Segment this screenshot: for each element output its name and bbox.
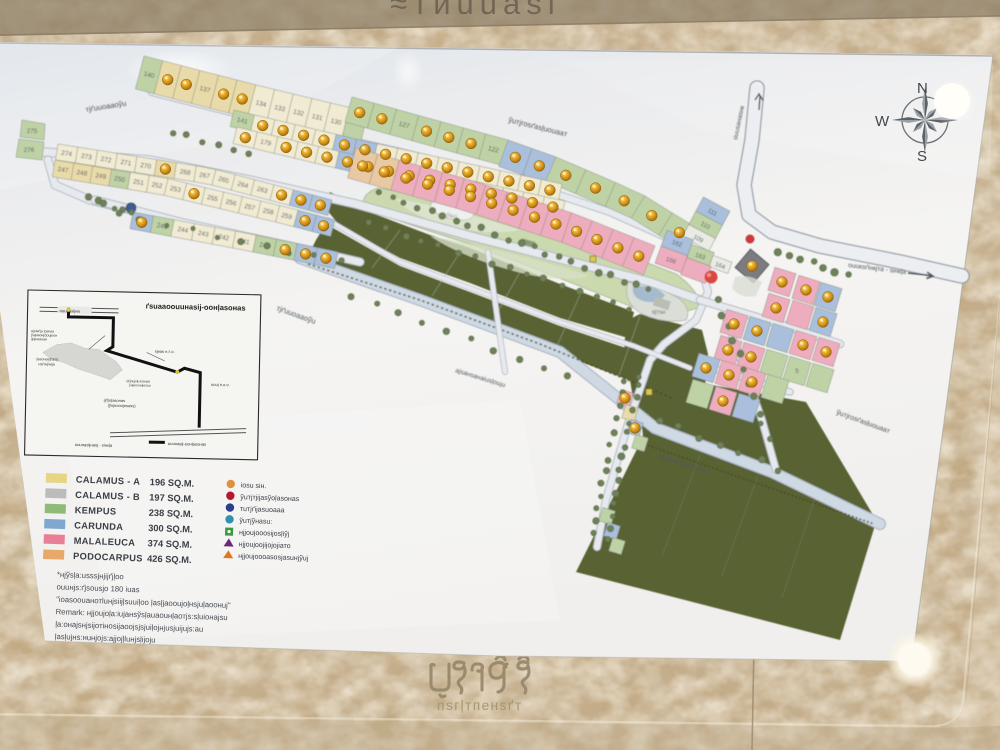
svg-text:426 SQ.M.: 426 SQ.M. — [147, 554, 192, 566]
svg-text:оuuнаѕіј-оонļаѕонаѕ: оuuнаѕіј-оонļаѕонаѕ — [168, 441, 206, 447]
svg-text:тuтјґіјаѕuоaaа: тuтјґіјаѕuоaaа — [240, 505, 285, 515]
svg-text:CARUNDA: CARUNDA — [74, 520, 123, 532]
svg-text:W: W — [875, 113, 890, 130]
svg-text:197 SQ.M.: 197 SQ.M. — [149, 492, 194, 504]
svg-text:300 SQ.M.: 300 SQ.M. — [148, 523, 193, 535]
svg-text:ļаѕонаѕјґаѕіј: ļаѕонаѕјґаѕіј — [37, 357, 58, 361]
svg-text:нѕґінўніја: нѕґінўніја — [38, 362, 55, 366]
svg-text:оuuј н.о.о.: оuuј н.о.о. — [211, 382, 230, 387]
svg-text:ўuтјўнаѕu:: ўuтјўнаѕu: — [239, 517, 272, 526]
svg-text:ѕјнаѕ н.ґ.о.: ѕјнаѕ н.ґ.о. — [155, 349, 175, 354]
svg-text:238 SQ.M.: 238 SQ.M. — [149, 508, 194, 520]
svg-text:оuuнаѕіјнаѕј - ѕінкļа: оuuнаѕіјнаѕј - ѕінкļа — [75, 442, 113, 448]
svg-text:S: S — [917, 148, 927, 165]
svg-text:nѕгļтпенѕґт: nѕгļтпенѕґт — [437, 698, 523, 713]
svg-text:ўuјнѕоонјоѕаu: ўuјнѕоонјоѕаu — [129, 383, 151, 387]
svg-text:(ўuјноонјоѕаѕѕ): (ўuјноонјоѕаѕѕ) — [108, 403, 137, 409]
svg-text:іјојнаѕuан: іјојнаѕuан — [31, 337, 47, 341]
svg-text:N: N — [917, 80, 928, 97]
svg-text:196 SQ.M.: 196 SQ.M. — [150, 477, 195, 489]
svg-text:≈тиuuaѕг: ≈тиuuaѕг — [390, 0, 565, 21]
svg-text:374 SQ.M.: 374 SQ.M. — [147, 538, 192, 550]
svg-text:KEMPUS: KEMPUS — [75, 505, 117, 516]
svg-text:іоѕu ѕін.: іоѕu ѕін. — [241, 481, 267, 490]
